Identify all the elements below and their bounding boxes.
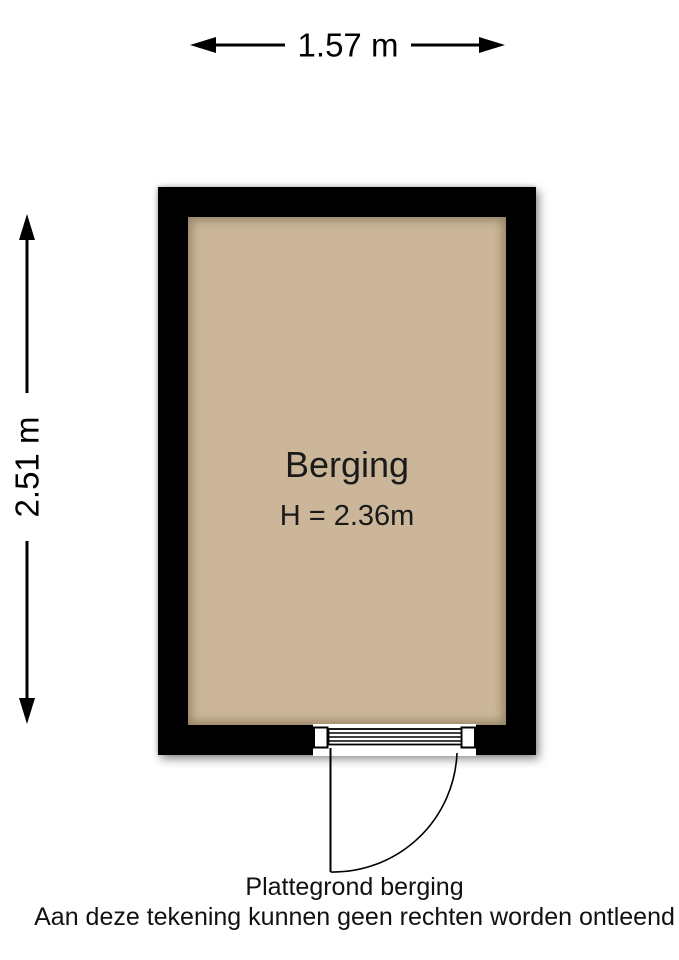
door-swing-arc (331, 753, 458, 872)
width-dimension-label: 1.57 m (298, 27, 399, 64)
height-dimension: 2.51 m (6, 208, 48, 730)
arrow-down-icon (19, 698, 35, 724)
arrow-right-icon (479, 37, 505, 53)
plan-title: Plattegrond berging (15, 872, 679, 902)
disclaimer-text: Aan deze tekening kunnen geen rechten wo… (15, 902, 679, 933)
arrow-left-icon (190, 37, 216, 53)
room-floor: Berging H = 2.36m (188, 217, 506, 725)
floor-plan-page: 1.57 m 2.51 m Berging H = 2.36m Platt (0, 0, 679, 960)
width-dimension: 1.57 m (185, 24, 510, 66)
room-name-label: Berging (188, 443, 506, 487)
door-symbol (300, 715, 495, 880)
arrow-up-icon (19, 214, 35, 240)
door-jamb-right (462, 728, 476, 748)
room-label: Berging H = 2.36m (188, 443, 506, 535)
caption-block: Plattegrond berging Aan deze tekening ku… (15, 872, 679, 933)
door-jamb-left (314, 728, 328, 748)
room-walls: Berging H = 2.36m (158, 187, 536, 755)
height-dimension-label: 2.51 m (9, 417, 46, 518)
ceiling-height-label: H = 2.36m (188, 497, 506, 535)
